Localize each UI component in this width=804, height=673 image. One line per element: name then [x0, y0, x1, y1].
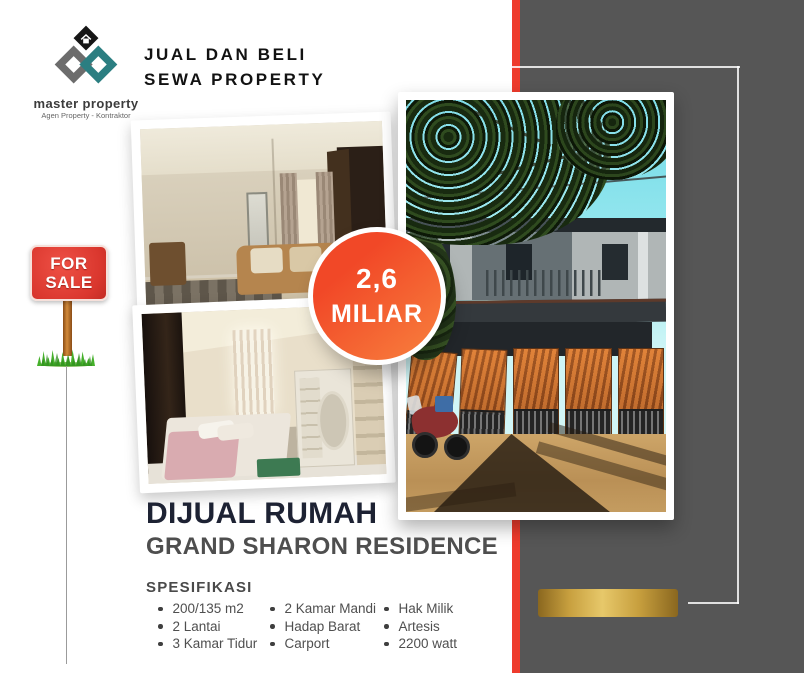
header-text-block: JUAL DAN BELI SEWA PROPERTY — [144, 42, 325, 92]
gate-grill — [619, 409, 663, 437]
sign-post — [63, 294, 72, 356]
brand-name: master property — [22, 96, 150, 111]
spec-column-2: 2 Kamar Mandi Hadap Barat Carport — [270, 600, 376, 653]
spec-item-label: 2200 watt — [399, 636, 458, 651]
spec-item-label: 2 Lantai — [173, 619, 221, 634]
gate-panel — [565, 348, 611, 438]
spec-item: 2 Kamar Mandi — [270, 600, 376, 618]
brand-tagline: Agen Property - Kontraktor — [22, 111, 150, 120]
spec-item: 200/135 m2 — [158, 600, 257, 618]
spec-item-label: Artesis — [399, 619, 440, 634]
spec-item-label: Carport — [285, 636, 330, 651]
spec-column-3: Hak Milik Artesis 2200 watt — [384, 600, 457, 653]
panel-inner-border-right — [737, 66, 739, 604]
bench — [257, 457, 301, 477]
header-line-2: SEWA PROPERTY — [144, 67, 325, 92]
motorcycle — [408, 388, 472, 458]
spec-item: 2 Lantai — [158, 618, 257, 636]
bullet-dot — [384, 642, 389, 647]
panel-inner-border-bottom — [688, 602, 739, 604]
pillar — [638, 232, 648, 302]
bullet-dot — [384, 607, 389, 612]
bullet-dot — [158, 642, 163, 647]
bullet-dot — [158, 624, 163, 629]
listing-subtitle: GRAND SHARON RESIDENCE — [146, 533, 498, 561]
spec-item-label: Hadap Barat — [285, 619, 361, 634]
window — [297, 179, 319, 247]
logo-teal-diamond — [85, 51, 112, 78]
price-unit: MILIAR — [331, 300, 423, 329]
bullet-dot — [270, 624, 275, 629]
bullet-dot — [384, 624, 389, 629]
spec-item-label: 3 Kamar Tidur — [173, 636, 258, 651]
spec-item: Hadap Barat — [270, 618, 376, 636]
cushion — [251, 248, 283, 274]
wheel — [444, 434, 470, 460]
grass-icon — [37, 348, 95, 367]
cabinet — [149, 242, 187, 285]
bullet-dot — [270, 642, 275, 647]
panel-inner-border-top — [512, 66, 740, 68]
bullet-dot — [158, 607, 163, 612]
spec-item: Hak Milik — [384, 600, 457, 618]
spec-item-label: Hak Milik — [399, 601, 454, 616]
dresser — [294, 368, 355, 467]
logo-house-body — [83, 39, 89, 44]
spec-column-1: 200/135 m2 2 Lantai 3 Kamar Tidur — [158, 600, 257, 653]
sign-line-2: SALE — [45, 273, 92, 292]
gold-accent-bar — [538, 589, 678, 617]
for-sale-sign: FOR SALE — [30, 245, 108, 301]
master-property-logo — [34, 24, 138, 98]
spec-item-label: 2 Kamar Mandi — [285, 601, 377, 616]
wheel — [412, 432, 438, 458]
price-badge: 2,6 MILIAR — [308, 227, 446, 365]
header-line-1: JUAL DAN BELI — [144, 42, 325, 67]
listing-title: DIJUAL RUMAH — [146, 497, 377, 531]
logo-black-diamond — [74, 26, 99, 51]
spec-item: Artesis — [384, 618, 457, 636]
price-amount: 2,6 — [356, 263, 398, 295]
window — [233, 329, 275, 416]
spec-item-label: 200/135 m2 — [173, 601, 244, 616]
bullet-dot — [270, 607, 275, 612]
sign-stake-line — [66, 366, 67, 664]
spec-heading: SPESIFIKASI — [146, 579, 253, 596]
balcony-railing — [486, 270, 606, 296]
property-flyer: master property Agen Property - Kontrakt… — [0, 0, 804, 673]
spec-item: Carport — [270, 635, 376, 653]
gate-panel — [618, 348, 664, 438]
sign-line-1: FOR — [50, 254, 87, 273]
spec-item: 3 Kamar Tidur — [158, 635, 257, 653]
motorcycle-crate — [435, 396, 453, 412]
spec-item: 2200 watt — [384, 635, 457, 653]
